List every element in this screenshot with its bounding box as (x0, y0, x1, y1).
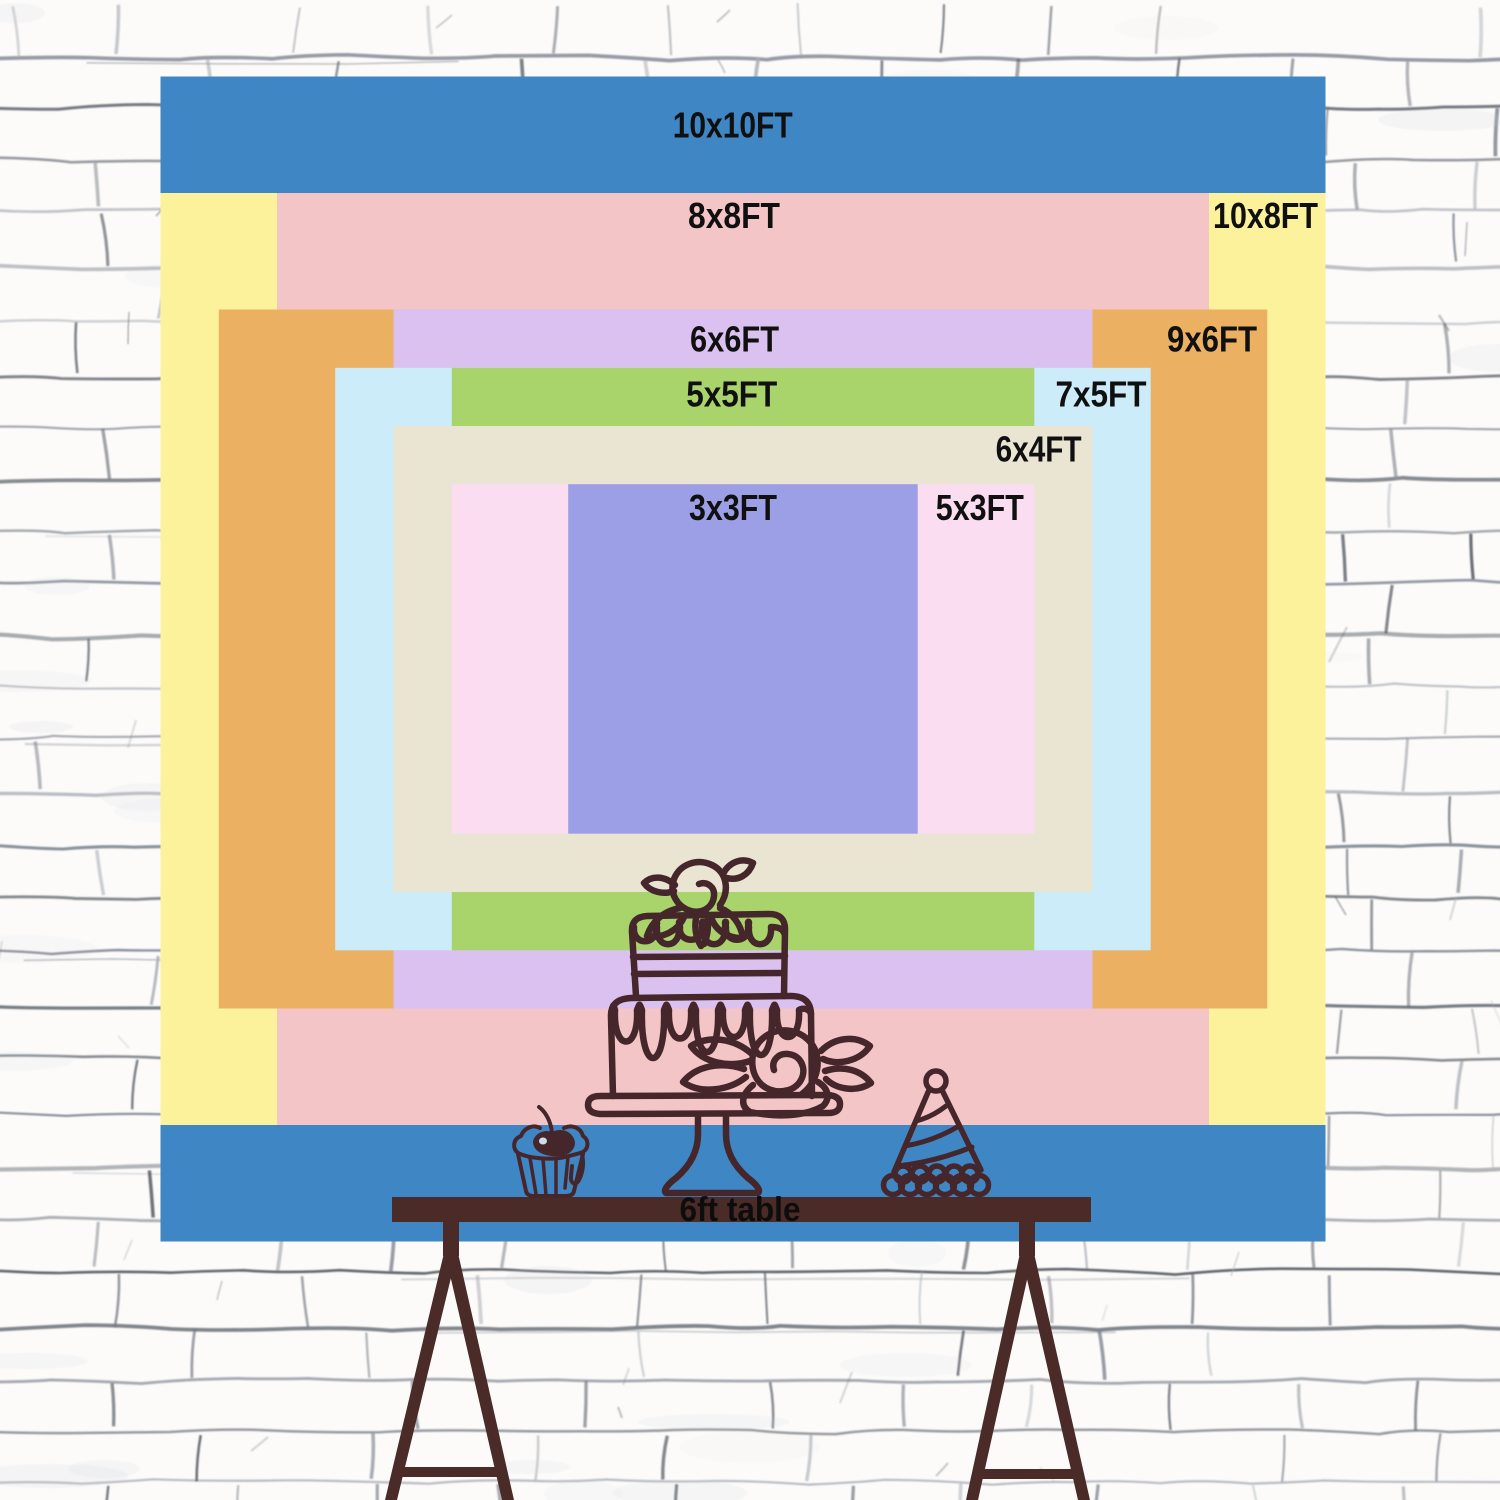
svg-text:5x5FT: 5x5FT (686, 374, 777, 415)
svg-text:3x3FT: 3x3FT (689, 487, 777, 528)
svg-text:6ft table: 6ft table (680, 1191, 801, 1229)
svg-text:10x10FT: 10x10FT (673, 105, 793, 146)
svg-text:10x8FT: 10x8FT (1213, 195, 1318, 236)
svg-text:8x8FT: 8x8FT (688, 195, 780, 236)
svg-text:5x3FT: 5x3FT (936, 487, 1024, 528)
svg-text:7x5FT: 7x5FT (1056, 374, 1147, 415)
svg-text:9x6FT: 9x6FT (1167, 319, 1257, 360)
svg-text:6x4FT: 6x4FT (996, 429, 1082, 470)
svg-text:6x6FT: 6x6FT (690, 319, 779, 360)
